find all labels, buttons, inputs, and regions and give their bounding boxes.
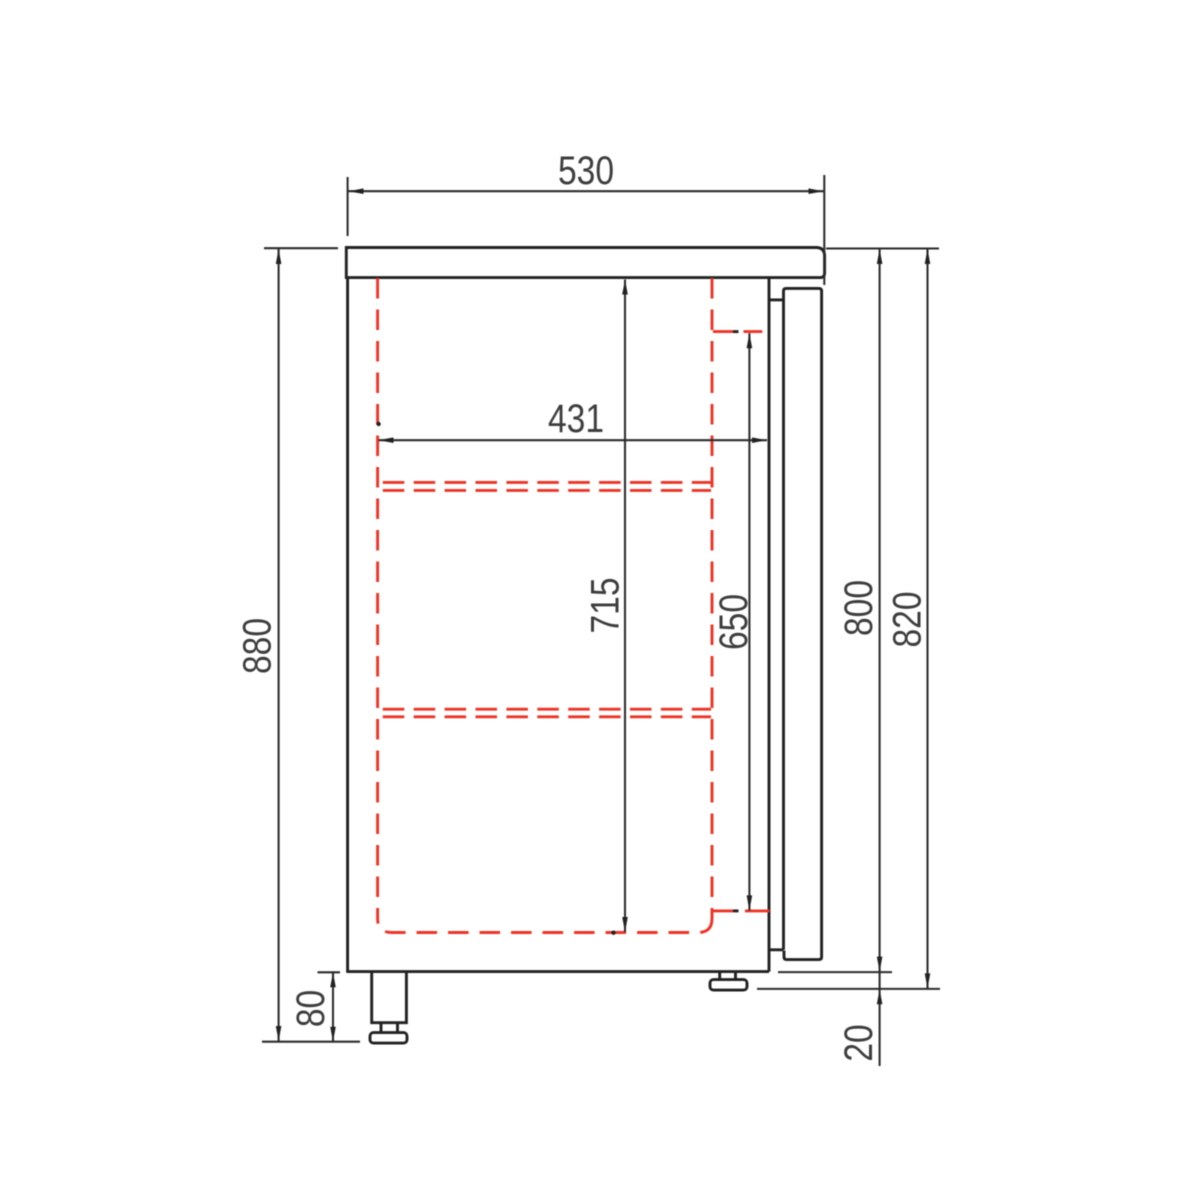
svg-text:880: 880 <box>235 618 279 674</box>
svg-text:715: 715 <box>583 577 627 633</box>
svg-text:20: 20 <box>836 1024 880 1061</box>
svg-text:530: 530 <box>558 148 614 192</box>
svg-text:650: 650 <box>711 594 755 650</box>
svg-text:800: 800 <box>836 580 880 636</box>
svg-text:431: 431 <box>548 396 604 440</box>
svg-text:80: 80 <box>288 990 332 1027</box>
svg-text:820: 820 <box>885 591 929 647</box>
